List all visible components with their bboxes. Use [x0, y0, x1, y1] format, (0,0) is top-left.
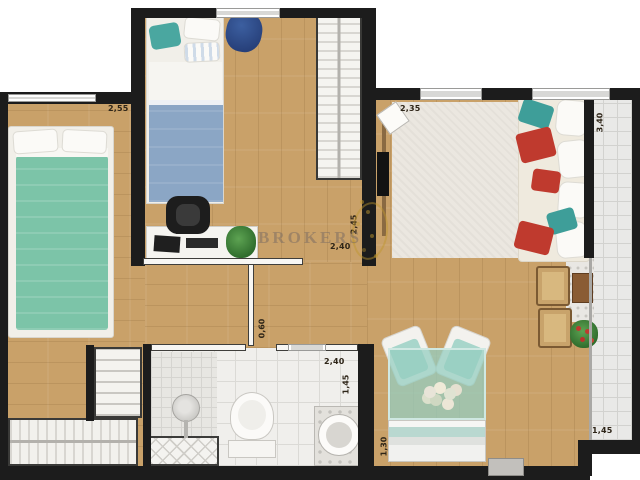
bench-sofa — [388, 420, 486, 462]
bedroom2-window — [216, 8, 280, 18]
entry-door — [488, 458, 524, 476]
wardrobe-bedroom2 — [316, 14, 362, 180]
balcony-sliding-door — [589, 258, 592, 440]
shower-stem — [184, 420, 188, 438]
keyboard — [186, 238, 218, 248]
wall-left-exterior — [0, 92, 8, 480]
pillow — [12, 128, 58, 154]
pillow-red — [531, 168, 562, 194]
toilet-bowl-inner — [238, 400, 266, 430]
round-sink-basin — [326, 422, 352, 448]
bedroom1-window — [8, 94, 96, 102]
wooden-chair-seat — [542, 272, 564, 300]
flower-plant — [570, 320, 598, 348]
tv-panel — [377, 152, 389, 196]
flower-plant-blooms — [576, 326, 581, 331]
dining-table — [388, 348, 486, 420]
living-window-1 — [420, 88, 482, 100]
pillow — [61, 129, 107, 154]
living-window-2 — [532, 88, 610, 100]
wall-closet-side — [86, 345, 94, 421]
wall-bathroom-right — [358, 344, 374, 466]
dim-balcony-length: 3,40 — [592, 104, 608, 140]
floorplan: 2,55 2,35 3,40 2,45 2,40 0,60 2,40 1,45 … — [0, 0, 640, 480]
watermark-text: BROKERS — [258, 228, 362, 248]
wall-bathroom-left — [143, 344, 151, 466]
wardrobe-hanging-clothes — [8, 418, 138, 466]
laptop — [153, 235, 180, 253]
wall-bedroom-divider — [131, 8, 145, 266]
wooden-chair-seat — [544, 314, 566, 342]
bed-blue-duvet — [149, 100, 223, 202]
wall-right-exterior — [632, 88, 640, 444]
shower-mat — [149, 436, 219, 466]
plant — [226, 226, 256, 258]
dim-dining-depth: 1,30 — [376, 428, 392, 464]
wall-bedroom2-bottom — [143, 258, 303, 265]
dim-bathroom-width: 2,40 — [324, 357, 345, 366]
desk-chair-seat — [176, 204, 200, 226]
bathroom-vent-window — [288, 344, 326, 351]
dim-living-width: 2,35 — [400, 104, 421, 113]
toilet-tank — [228, 440, 276, 458]
shelf-closet — [94, 347, 142, 418]
dim-hall-door: 0,60 — [254, 310, 270, 346]
pillow — [183, 16, 221, 42]
living-rug — [392, 102, 524, 258]
bed-green-duvet — [16, 156, 108, 330]
dim-balcony-width: 1,45 — [592, 426, 613, 435]
dim-bathroom-depth: 1,45 — [338, 366, 354, 402]
watermark-wreath-dots — [360, 200, 364, 204]
pillow-teal — [148, 22, 182, 51]
dim-bedroom1-width: 2,55 — [108, 104, 129, 113]
wall-bathroom-top-left — [151, 344, 246, 351]
balcony-floor — [589, 96, 637, 440]
shower-head — [172, 394, 200, 422]
wall-balcony-step — [578, 440, 592, 476]
flower-centerpiece — [424, 386, 436, 398]
pillow-striped — [184, 41, 221, 63]
